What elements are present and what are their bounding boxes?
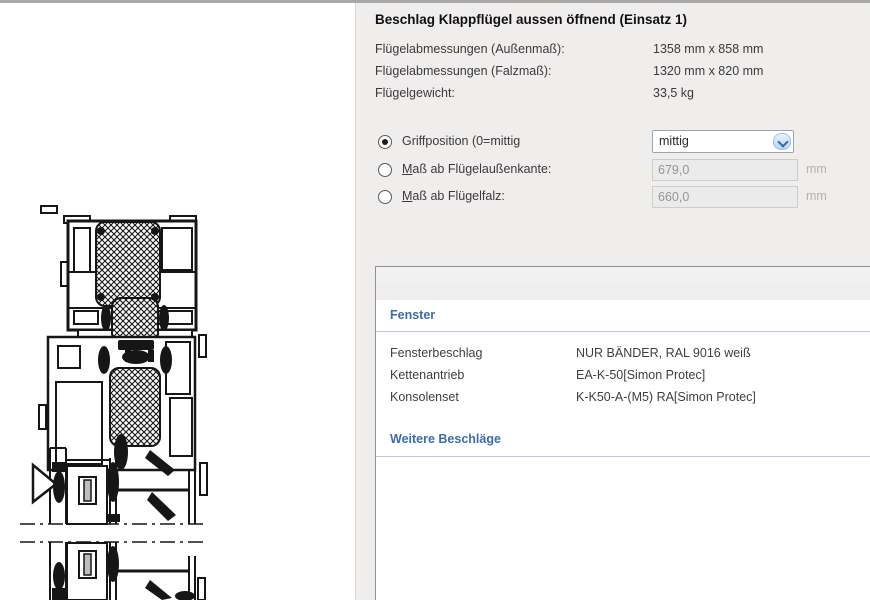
profile-drawing (0, 3, 356, 600)
radio-grip-position[interactable] (378, 135, 392, 149)
rebate-dimension-value: 1320 mm x 820 mm (653, 64, 763, 78)
table-header-strip (376, 267, 870, 300)
radio-rebate[interactable] (378, 190, 392, 204)
fitting-config-panel: Beschlag Klappflügel aussen öffnend (Ein… (356, 3, 870, 600)
drawing-canvas[interactable] (0, 3, 356, 600)
radio-outer-edge[interactable] (378, 163, 392, 177)
rebate-label: Maß ab Flügelfalz: (402, 189, 505, 203)
section-header-fenster[interactable]: Fenster (390, 308, 435, 322)
section-underline (376, 331, 870, 332)
rebate-dimension-label: Flügelabmessungen (Falzmaß): (375, 64, 551, 78)
chevron-down-icon (777, 136, 788, 147)
rebate-input[interactable] (652, 186, 798, 208)
outer-edge-input[interactable] (652, 159, 798, 181)
rebate-unit: mm (806, 189, 827, 203)
dropdown-button[interactable] (773, 133, 791, 150)
fitting-configurator-window: { "panel": { "title": "Beschlag Klappflü… (0, 0, 870, 600)
section-underline (376, 456, 870, 457)
section-header-weitere-beschlaege[interactable]: Weitere Beschläge (390, 432, 501, 446)
outer-dimension-value: 1358 mm x 858 mm (653, 42, 763, 56)
table-row-label[interactable]: Kettenantrieb (390, 368, 464, 382)
outer-edge-label: Maß ab Flügelaußenkante: (402, 162, 551, 176)
grip-position-dropdown-value: mittig (659, 134, 689, 148)
grip-position-dropdown[interactable]: mittig (652, 130, 794, 153)
table-row-value[interactable]: EA-K-50[Simon Protec] (576, 368, 705, 382)
sash-weight-label: Flügelgewicht: (375, 86, 455, 100)
table-row-label[interactable]: Fensterbeschlag (390, 346, 482, 360)
table-row-label[interactable]: Konsolenset (390, 390, 459, 404)
outer-edge-unit: mm (806, 162, 827, 176)
fittings-table: Fenster Fensterbeschlag NUR BÄNDER, RAL … (375, 266, 870, 600)
page-title: Beschlag Klappflügel aussen öffnend (Ein… (375, 12, 687, 27)
outer-dimension-label: Flügelabmessungen (Außenmaß): (375, 42, 565, 56)
table-row-value[interactable]: K-K50-A-(M5) RA[Simon Protec] (576, 390, 756, 404)
grip-position-label: Griffposition (0=mittig (402, 134, 520, 148)
table-row-value[interactable]: NUR BÄNDER, RAL 9016 weiß (576, 346, 751, 360)
radio-dot-icon (382, 139, 388, 145)
sash-weight-value: 33,5 kg (653, 86, 694, 100)
